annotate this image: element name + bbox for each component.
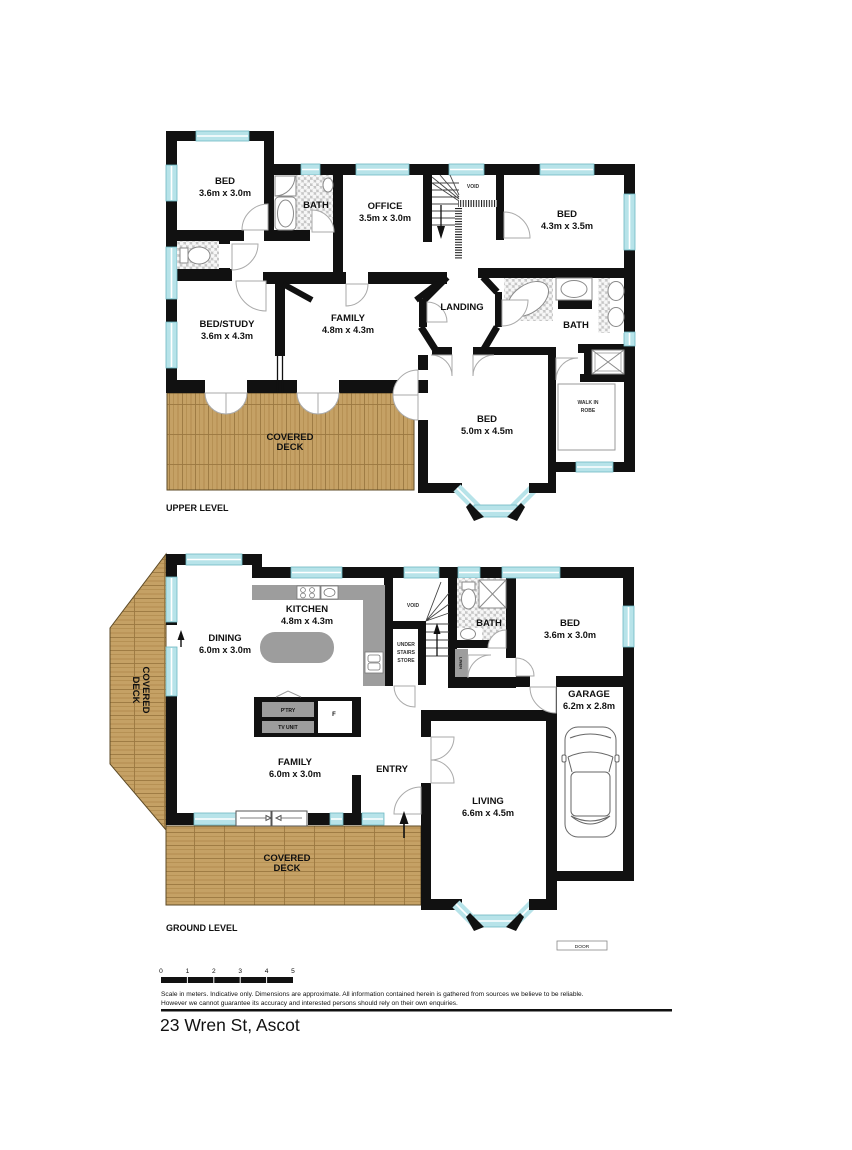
svg-text:ROBE: ROBE — [581, 408, 596, 414]
svg-text:UNDER: UNDER — [397, 642, 415, 648]
svg-text:3.6m x 3.0m: 3.6m x 3.0m — [544, 630, 596, 640]
svg-text:GROUND LEVEL: GROUND LEVEL — [166, 923, 238, 933]
svg-text:TV UNIT: TV UNIT — [278, 725, 297, 731]
svg-text:2: 2 — [212, 968, 216, 975]
svg-text:6.0m x 3.0m: 6.0m x 3.0m — [199, 645, 251, 655]
svg-text:STORE: STORE — [397, 658, 415, 664]
svg-text:3: 3 — [238, 968, 242, 975]
svg-text:OFFICE: OFFICE — [368, 201, 403, 212]
svg-text:WALK IN: WALK IN — [577, 400, 598, 406]
svg-text:VOID: VOID — [407, 603, 420, 609]
svg-text:BED: BED — [477, 414, 497, 425]
svg-text:FAMILY: FAMILY — [278, 757, 313, 768]
svg-text:UPPER LEVEL: UPPER LEVEL — [166, 503, 229, 513]
svg-text:4: 4 — [265, 968, 269, 975]
svg-text:5.0m x 4.5m: 5.0m x 4.5m — [461, 426, 513, 436]
svg-text:P'TRY: P'TRY — [281, 708, 296, 714]
svg-text:BED/STUDY: BED/STUDY — [200, 319, 256, 330]
svg-text:6.2m x 2.8m: 6.2m x 2.8m — [563, 701, 615, 711]
svg-text:0: 0 — [159, 968, 163, 975]
svg-text:LINEN: LINEN — [459, 657, 464, 669]
svg-text:VOID: VOID — [467, 184, 480, 190]
svg-text:DINING: DINING — [208, 633, 241, 644]
svg-text:4.3m x 3.5m: 4.3m x 3.5m — [541, 221, 593, 231]
svg-text:1: 1 — [186, 968, 190, 975]
svg-text:KITCHEN: KITCHEN — [286, 604, 328, 615]
svg-text:LIVING: LIVING — [472, 796, 504, 807]
svg-text:FAMILY: FAMILY — [331, 313, 366, 324]
svg-text:23 Wren St, Ascot: 23 Wren St, Ascot — [160, 1015, 300, 1035]
svg-text:ENTRY: ENTRY — [376, 764, 409, 775]
svg-text:LANDING: LANDING — [440, 302, 483, 313]
svg-text:BATH: BATH — [563, 320, 589, 331]
svg-text:4.8m x 4.3m: 4.8m x 4.3m — [281, 616, 333, 626]
svg-text:3.6m x 3.0m: 3.6m x 3.0m — [199, 188, 251, 198]
svg-text:DECK: DECK — [130, 677, 141, 704]
svg-text:5: 5 — [291, 968, 295, 975]
svg-text:3.5m x 3.0m: 3.5m x 3.0m — [359, 213, 411, 223]
svg-text:BED: BED — [557, 209, 577, 220]
svg-text:BATH: BATH — [476, 618, 502, 629]
svg-text:DOOR: DOOR — [575, 944, 590, 950]
svg-text:Scale in meters. Indicative on: Scale in meters. Indicative only. Dimens… — [161, 991, 584, 998]
svg-text:BED: BED — [560, 618, 580, 629]
svg-text:However we cannot guarantee it: However we cannot guarantee its accuracy… — [161, 1000, 458, 1007]
svg-text:BED: BED — [215, 176, 235, 187]
svg-text:3.6m x 4.3m: 3.6m x 4.3m — [201, 331, 253, 341]
svg-text:F: F — [332, 712, 336, 718]
svg-text:BATH: BATH — [303, 200, 329, 211]
svg-text:STAIRS: STAIRS — [397, 650, 416, 656]
svg-text:DECK: DECK — [274, 863, 301, 874]
svg-text:DECK: DECK — [277, 442, 304, 453]
svg-text:6.0m x 3.0m: 6.0m x 3.0m — [269, 769, 321, 779]
svg-text:GARAGE: GARAGE — [568, 689, 610, 700]
svg-text:6.6m x 4.5m: 6.6m x 4.5m — [462, 808, 514, 818]
svg-text:4.8m x 4.3m: 4.8m x 4.3m — [322, 325, 374, 335]
